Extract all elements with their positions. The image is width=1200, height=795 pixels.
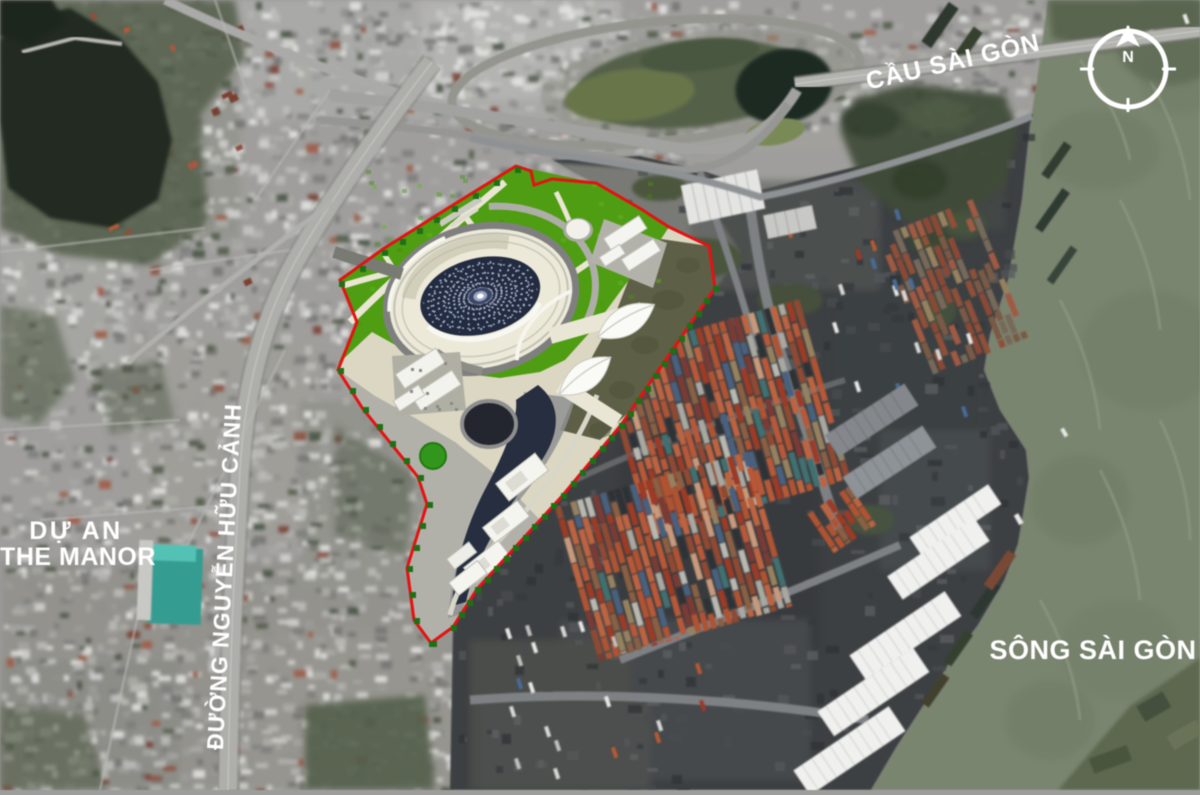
svg-text:SÔNG SÀI GÒN: SÔNG SÀI GÒN (989, 634, 1196, 665)
svg-text:THE MANOR: THE MANOR (0, 543, 156, 571)
svg-text:N: N (1122, 49, 1134, 66)
svg-text:DỰ AN: DỰ AN (29, 517, 122, 545)
